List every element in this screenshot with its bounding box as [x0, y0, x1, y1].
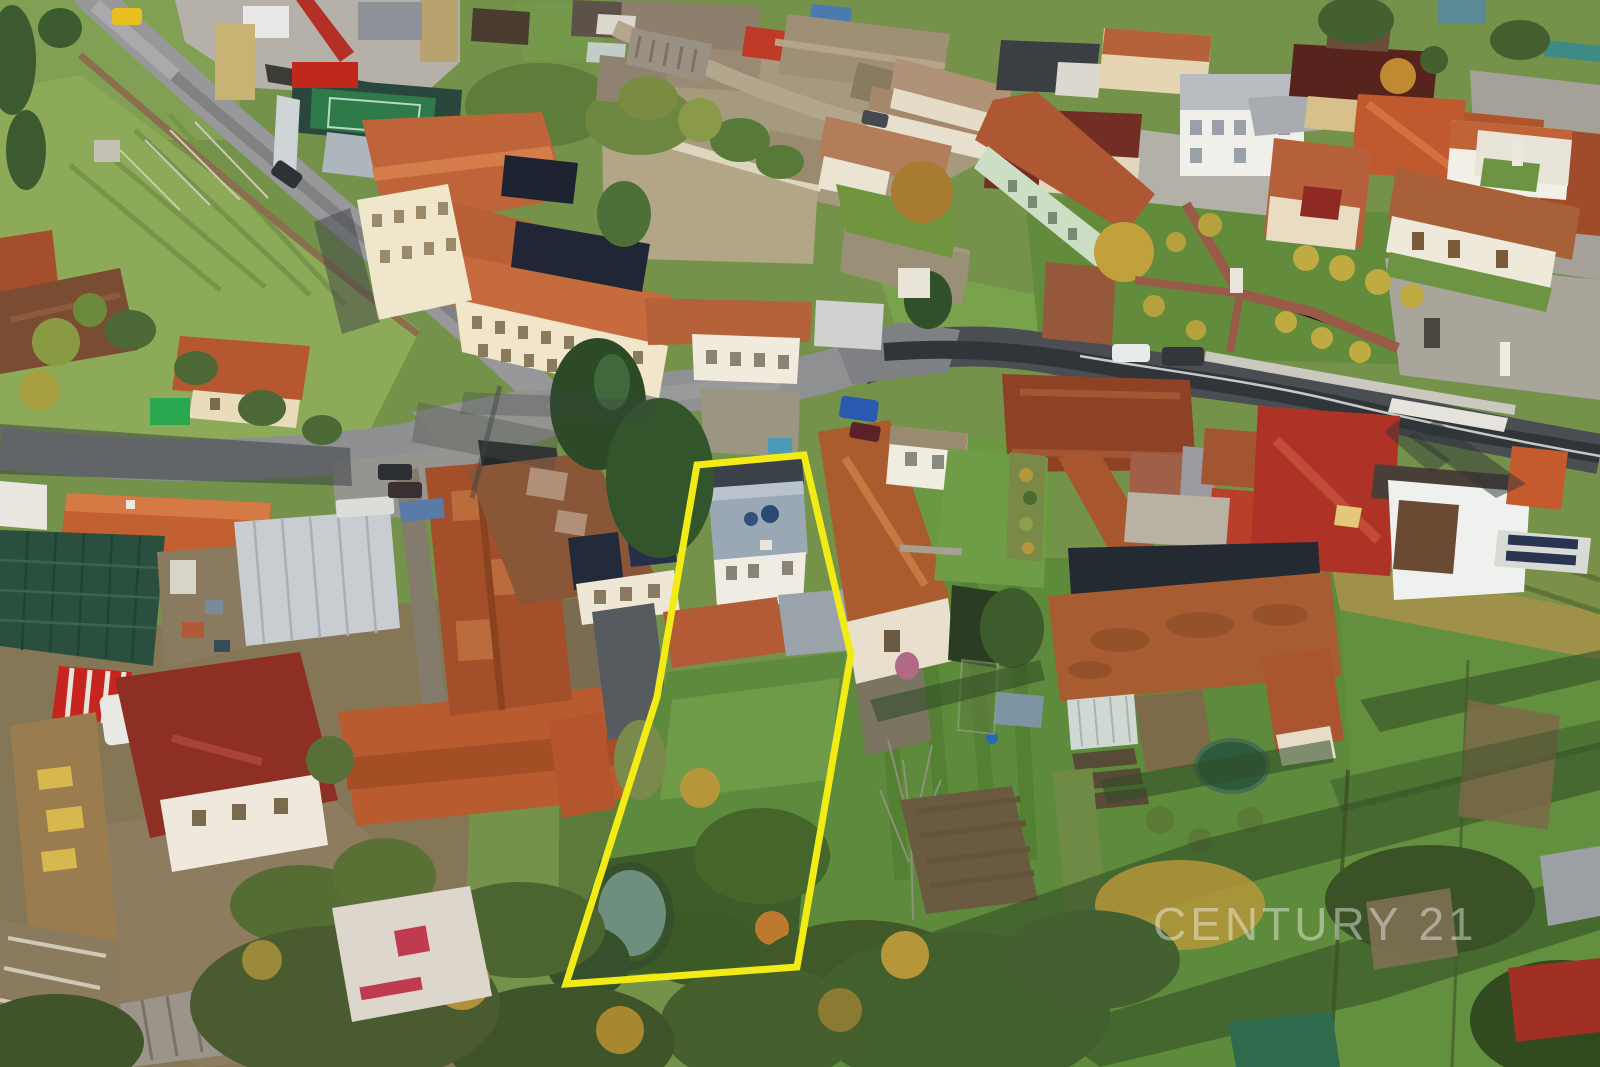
svg-text:CENTURY 21: CENTURY 21 [1153, 898, 1478, 950]
